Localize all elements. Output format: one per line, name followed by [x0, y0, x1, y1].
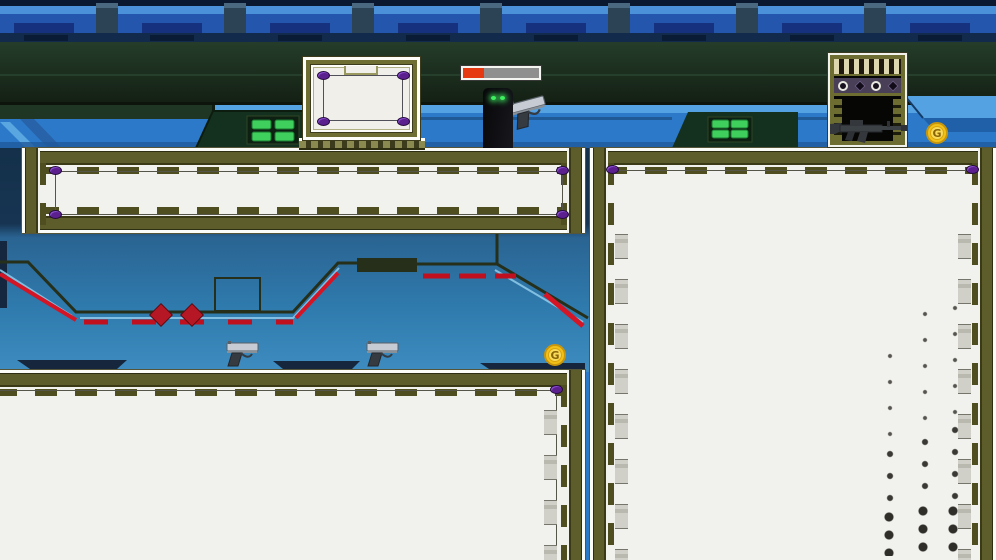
health-bar-fill	[463, 68, 484, 78]
platform-edge	[22, 148, 46, 233]
bolt	[606, 165, 619, 174]
dust-trail	[917, 502, 929, 556]
machine-tabs	[615, 234, 628, 560]
vent-grille-right	[708, 117, 752, 142]
wall-panel-outline	[215, 278, 260, 311]
dust-trail	[884, 444, 896, 508]
platform-edge	[561, 370, 585, 560]
bolt	[556, 166, 569, 175]
bolt	[49, 210, 62, 219]
pistol-pickup[interactable]	[226, 341, 260, 367]
bolt	[550, 385, 563, 394]
player-eye	[500, 96, 505, 100]
bolt-wire	[55, 171, 56, 215]
vent-grille-left	[247, 116, 299, 144]
crate-latch	[344, 66, 378, 75]
dust-trail	[919, 432, 931, 502]
player-eye	[491, 96, 496, 100]
coin-letter: G	[550, 349, 559, 362]
ceiling-panels	[0, 0, 996, 42]
bolt-wire	[323, 75, 403, 121]
bolt	[556, 210, 569, 219]
coin-letter: G	[932, 127, 941, 140]
platform-right-tower	[590, 148, 996, 560]
machine-tabs	[544, 410, 557, 560]
pistol-pickup[interactable]	[366, 341, 400, 367]
dust-trail	[884, 348, 896, 444]
platform-edge	[590, 148, 614, 560]
game-viewport: G G	[0, 0, 996, 560]
bolt-wire	[56, 214, 561, 215]
bolt-wire	[56, 171, 561, 172]
red-diamond	[150, 304, 204, 327]
platform-edge	[22, 207, 585, 233]
bolt	[397, 117, 410, 126]
dust-trail	[949, 420, 961, 502]
coin[interactable]: G	[926, 122, 948, 144]
bolt	[317, 71, 330, 80]
crate[interactable]	[303, 57, 420, 140]
platform-edge	[0, 370, 585, 396]
bolt-wire	[562, 171, 563, 215]
player-character[interactable]	[483, 88, 513, 148]
bolt-wire	[618, 170, 970, 171]
bolt	[397, 71, 410, 80]
rifle-pickup[interactable]	[830, 117, 908, 145]
platform-top-bar	[22, 148, 585, 233]
bolt	[966, 165, 979, 174]
dust-trail	[947, 502, 959, 556]
coin[interactable]: G	[544, 344, 566, 366]
bolt	[49, 166, 62, 175]
health-bar	[461, 66, 541, 80]
platform-edge	[561, 148, 585, 233]
platform-bottom-floor	[0, 370, 585, 560]
platform-edge	[972, 148, 996, 560]
wall-decor-lines	[0, 232, 590, 372]
bolt	[317, 117, 330, 126]
bolt-wire	[0, 390, 554, 391]
dust-trail	[949, 300, 961, 420]
dust-trail	[883, 508, 895, 556]
dust-trail	[919, 306, 931, 432]
